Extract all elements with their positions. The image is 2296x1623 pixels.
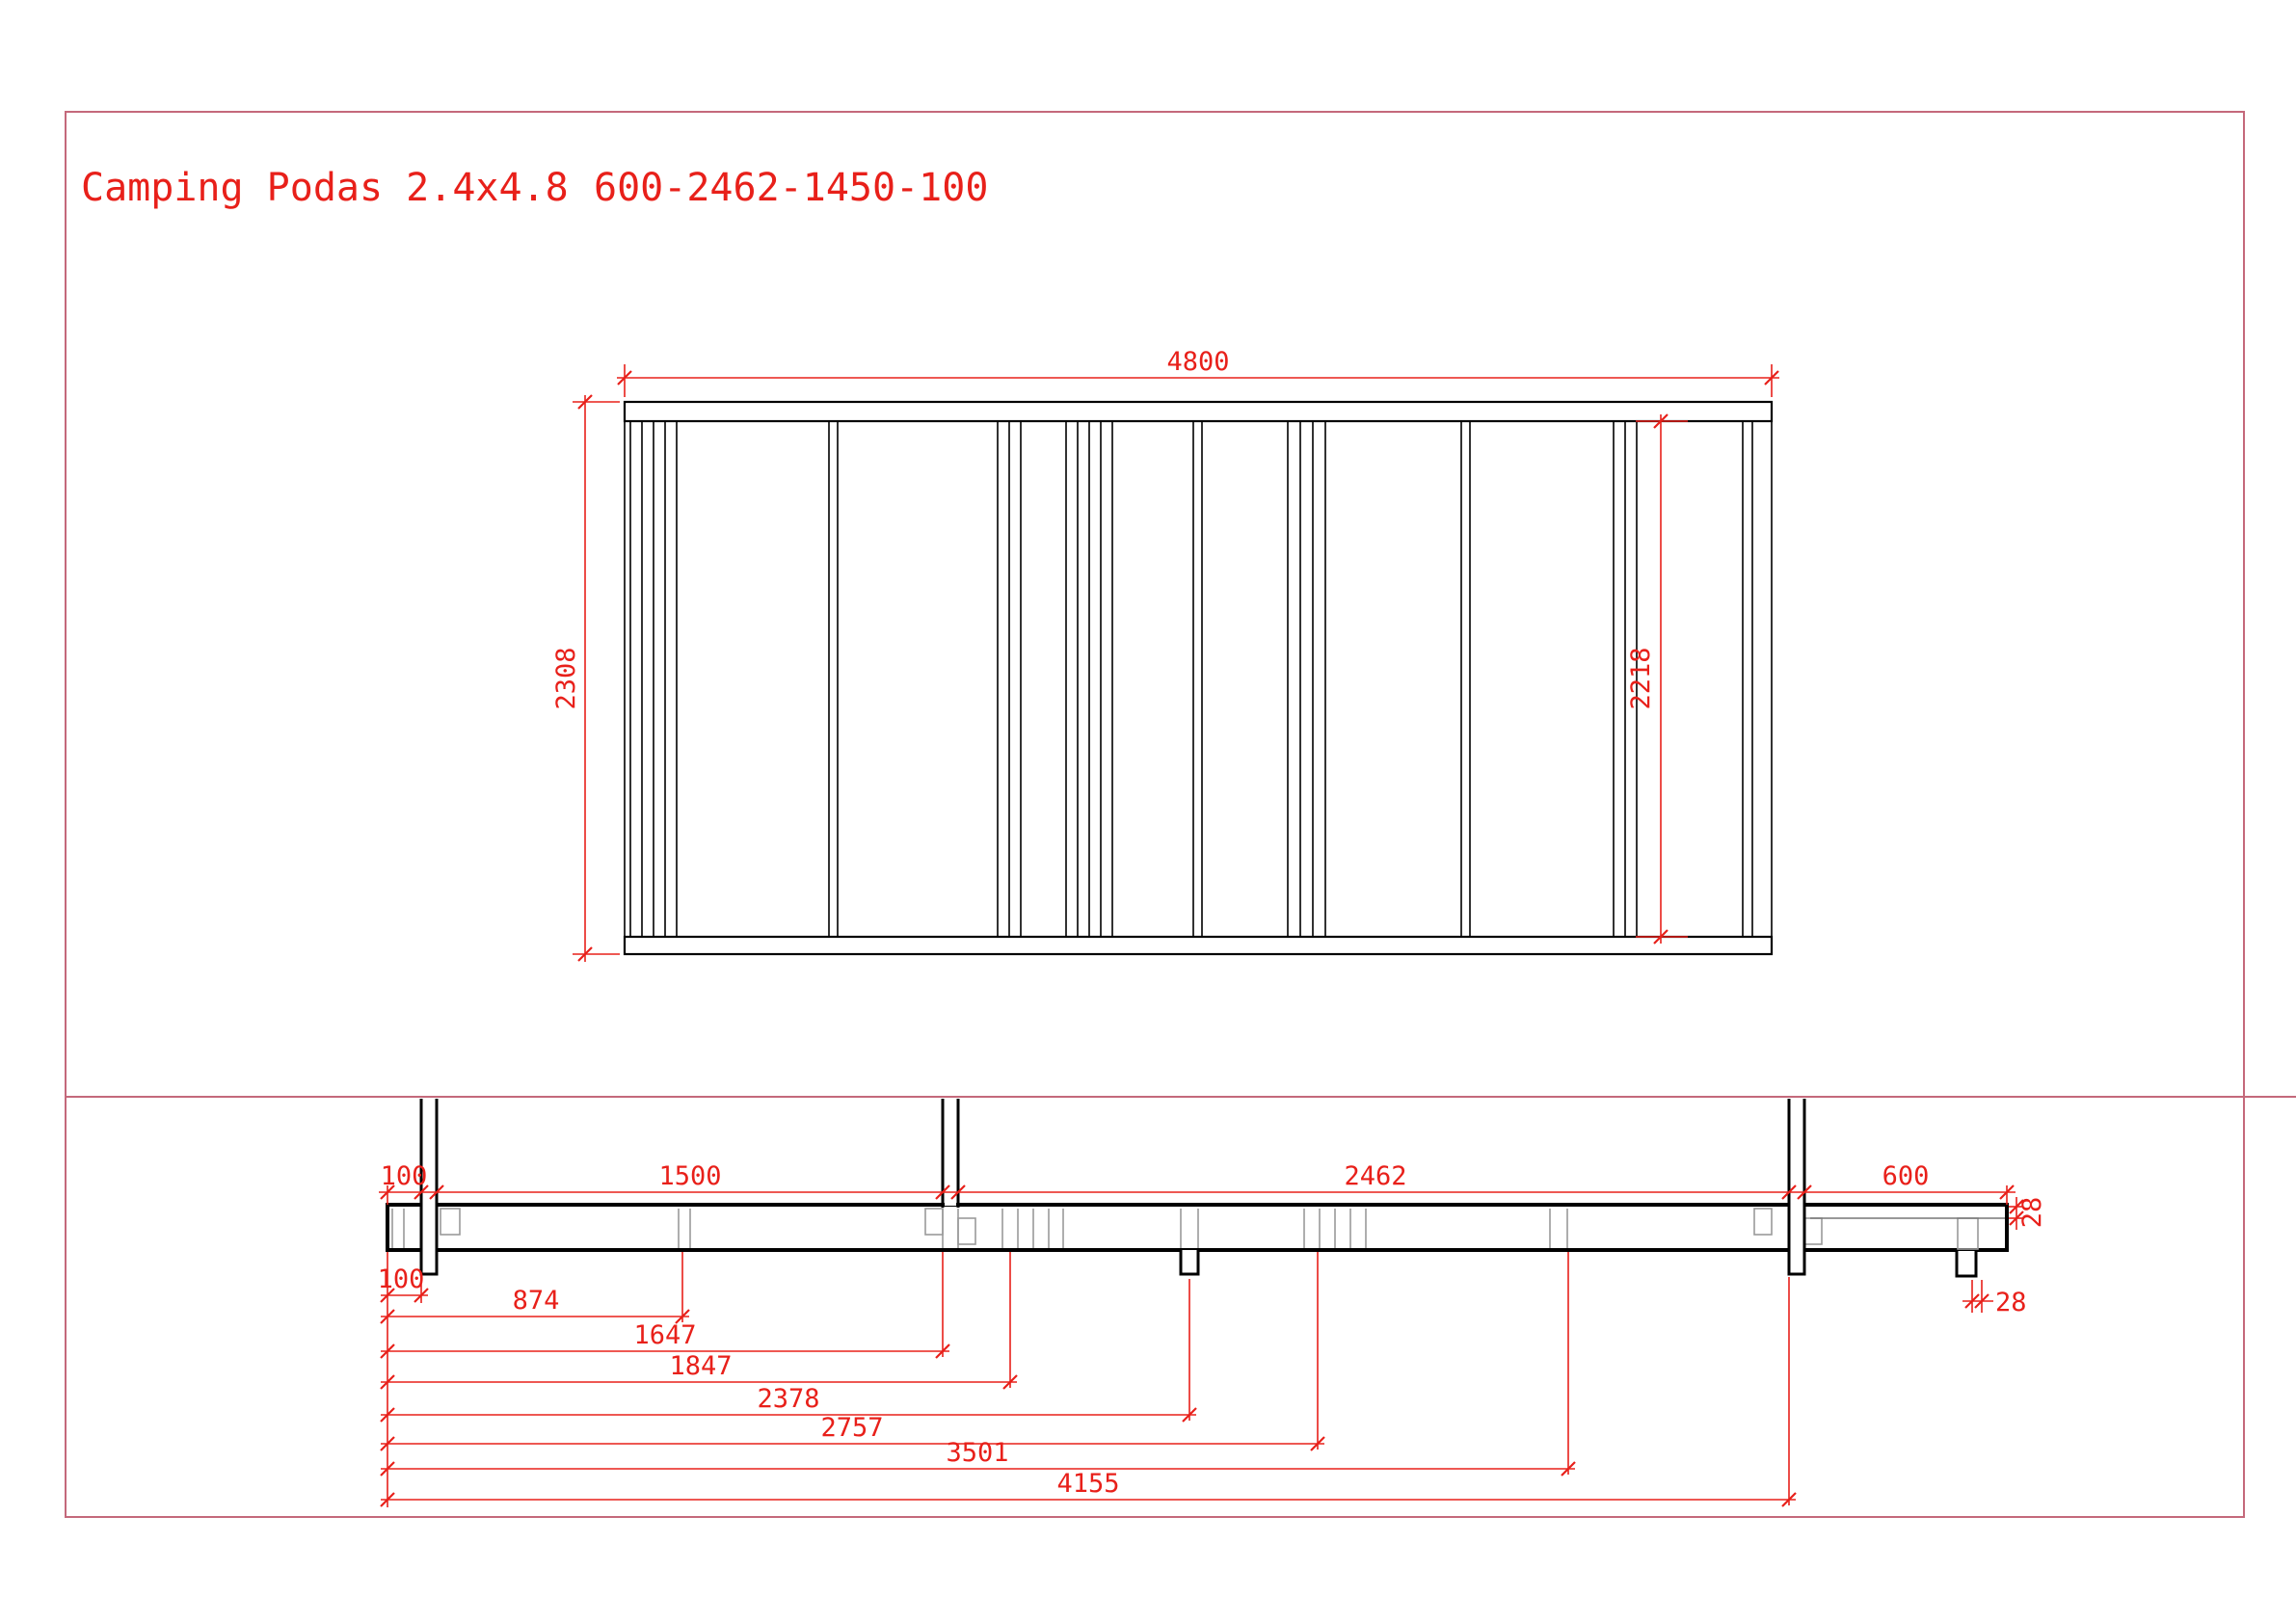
plan-joist-cluster-left bbox=[630, 421, 677, 937]
dim-2462-label: 2462 bbox=[1344, 1161, 1406, 1191]
title-block: Camping Podas 2.4x4.8 600-2462-1450-100 bbox=[81, 166, 988, 210]
dim-1647-label: 1647 bbox=[633, 1320, 696, 1350]
dim-28-deck: 28 bbox=[2009, 1197, 2047, 1230]
plan-joist-cluster-2757 bbox=[1288, 421, 1325, 937]
foot-right-end bbox=[1957, 1251, 1976, 1276]
drawing-sheet: Camping Podas 2.4x4.8 600-2462-1450-100 … bbox=[0, 0, 2296, 1623]
dim-2757-label: 2757 bbox=[820, 1413, 883, 1443]
top-view: 4800 2308 2218 bbox=[551, 347, 1779, 962]
dim-top-chain: 100 1500 2462 600 bbox=[379, 1161, 2016, 1205]
dim-28-foot-label: 28 bbox=[1995, 1288, 2027, 1317]
dim-2218-label: 2218 bbox=[1626, 647, 1656, 709]
plan-bottom-rail bbox=[625, 937, 1772, 954]
dim-bottom-chains: 100 874 1647 1847 2378 2757 3501 4155 bbox=[378, 1252, 1796, 1507]
plan-joist-874 bbox=[829, 421, 838, 937]
side-view: 100 1500 2462 600 28 28 bbox=[378, 1099, 2047, 1507]
cad-canvas: Camping Podas 2.4x4.8 600-2462-1450-100 … bbox=[0, 0, 2296, 1623]
dim-600-label: 600 bbox=[1882, 1161, 1930, 1191]
plan-joist-right bbox=[1743, 421, 1752, 937]
dim-2308-label: 2308 bbox=[551, 647, 581, 709]
dim-28-foot: 28 bbox=[1962, 1280, 2027, 1317]
dim-100-top-label: 100 bbox=[381, 1161, 428, 1191]
plan-joist-3501 bbox=[1461, 421, 1470, 937]
dim-2378-label: 2378 bbox=[757, 1384, 819, 1414]
foot-middle bbox=[1181, 1250, 1198, 1274]
dim-4800-label: 4800 bbox=[1166, 347, 1229, 377]
dim-2218: 2218 bbox=[1626, 414, 1688, 944]
dim-4800: 4800 bbox=[617, 347, 1779, 397]
dim-1847-label: 1847 bbox=[669, 1351, 732, 1381]
post-right bbox=[1789, 1099, 1804, 1274]
dim-3501-label: 3501 bbox=[946, 1438, 1008, 1468]
dim-28-deck-label: 28 bbox=[2017, 1197, 2047, 1229]
dim-2308: 2308 bbox=[551, 395, 620, 962]
dim-874-label: 874 bbox=[513, 1286, 560, 1316]
dim-100-bottom-label: 100 bbox=[378, 1264, 425, 1294]
dim-4155-label: 4155 bbox=[1056, 1469, 1119, 1499]
plan-top-rail bbox=[625, 402, 1772, 421]
plan-joist-2378 bbox=[1193, 421, 1202, 937]
beam-band bbox=[387, 1205, 2007, 1250]
title-code: 600-2462-1450-100 bbox=[594, 166, 988, 210]
plan-frame-edges bbox=[625, 402, 1772, 954]
plan-joist-cluster-1647 bbox=[998, 421, 1021, 937]
sheet-border bbox=[66, 112, 2296, 1517]
plan-joist-cluster-1847 bbox=[1066, 421, 1112, 937]
dim-1500-label: 1500 bbox=[658, 1161, 721, 1191]
title-product: Camping Podas 2.4x4.8 bbox=[81, 166, 569, 210]
